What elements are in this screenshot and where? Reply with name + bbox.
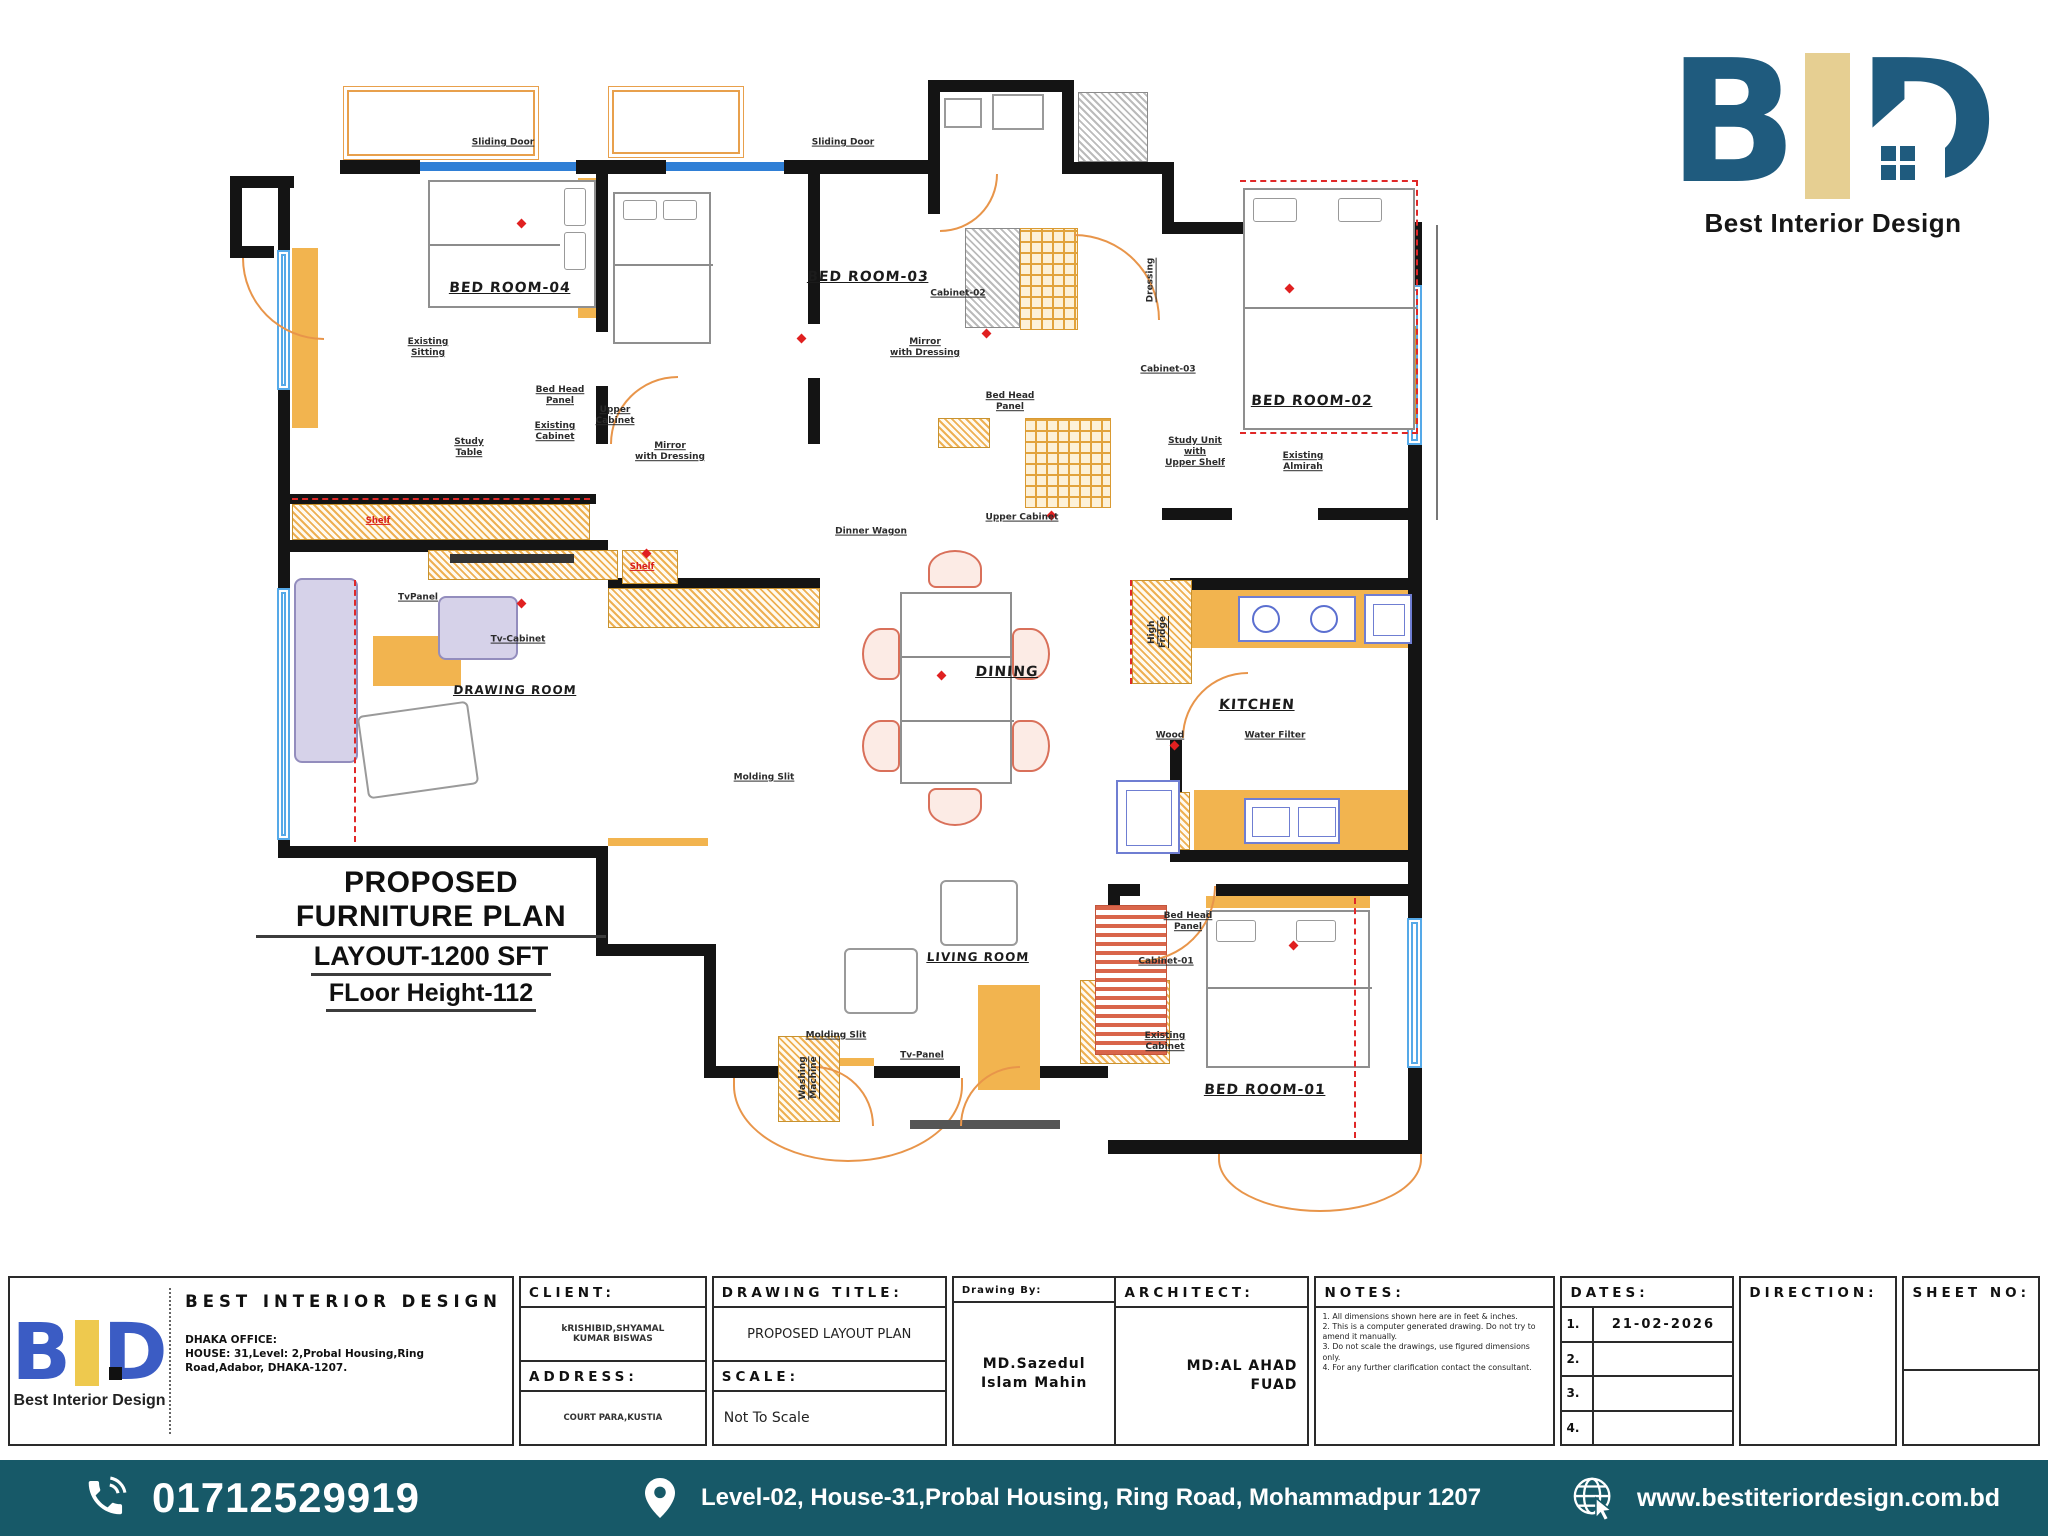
room-label: KITCHEN — [1218, 697, 1295, 713]
dining-table — [900, 592, 1012, 784]
room-label: BED ROOM-01 — [1204, 1082, 1327, 1098]
footer-website: www.bestiteriordesign.com.bd — [1637, 1484, 2000, 1513]
direction-header: DIRECTION: — [1741, 1278, 1895, 1306]
date-number: 1. — [1562, 1308, 1594, 1341]
small-logo-letter-i — [75, 1320, 99, 1386]
plan-title: PROPOSED FURNITURE PLAN LAYOUT-1200 SFT … — [256, 866, 606, 1015]
address-value: COURT PARA,KUSTIA — [521, 1390, 705, 1444]
architect-value: MD:AL AHAD FUAD — [1116, 1306, 1307, 1444]
dates-header: DATES: — [1562, 1278, 1732, 1306]
notes-box: NOTES: 1. All dimensions shown here are … — [1314, 1276, 1555, 1446]
furniture-label: Shelf — [366, 516, 391, 526]
furniture-label: Mirror with Dressing — [635, 441, 705, 463]
sofa-sketch — [357, 701, 480, 800]
drawing-by-value: MD.Sazedul Islam Mahin — [954, 1301, 1115, 1444]
furniture-label: Cabinet-03 — [1140, 365, 1195, 376]
note-item: 4. For any further clarification contact… — [1322, 1363, 1547, 1373]
scale-header: SCALE: — [714, 1360, 945, 1390]
furniture-label: Existing Almirah — [1283, 451, 1324, 473]
footer-phone: 01712529919 — [152, 1474, 420, 1522]
client-box: CLIENT: kRISHIBID,SHYAMAL KUMAR BISWAS A… — [519, 1276, 707, 1446]
bid-logo-letters: B D — [1668, 42, 1998, 202]
room-label: BED ROOM-02 — [1251, 393, 1374, 409]
balcony-outline — [343, 86, 539, 160]
armchair — [438, 596, 518, 660]
furniture-label: Molding Slit — [734, 773, 795, 784]
furniture-label: Bed Head Panel — [986, 391, 1035, 413]
client-header: CLIENT: — [521, 1278, 705, 1306]
date-row: 1. 21-02-2026 — [1562, 1306, 1732, 1341]
logo-letter-b: B — [1668, 44, 1798, 202]
furniture-label: Sliding Door — [812, 138, 874, 149]
sheet-box: SHEET NO: — [1902, 1276, 2040, 1446]
room-label: BED ROOM-03 — [807, 269, 930, 285]
title-block: B D Best Interior Design BEST INTERIOR D… — [8, 1276, 2040, 1446]
furniture-label: Washing Machine — [798, 1056, 820, 1099]
drawing-by-architect-box: Drawing By: MD.Sazedul Islam Mahin ARCHI… — [952, 1276, 1310, 1446]
small-logo: B D Best Interior Design — [10, 1278, 169, 1444]
drawing-title-header: DRAWING TITLE: — [714, 1278, 945, 1306]
footer-address: Level-02, House-31,Probal Housing, Ring … — [701, 1484, 1481, 1512]
furniture-label: Tv-Cabinet — [491, 635, 546, 646]
armchair-sketch — [940, 880, 1018, 946]
footer-bar: 01712529919 Level-02, House-31,Probal Ho… — [0, 1460, 2048, 1536]
floor-plan: BED ROOM-04BED ROOM-03BED ROOM-02DRAWING… — [278, 80, 1423, 1235]
furniture-label: Study Unit with Upper Shelf — [1165, 436, 1225, 468]
date-row: 2. — [1562, 1341, 1732, 1376]
company-logo: B D Best Interior Design — [1668, 42, 1998, 239]
date-number: 2. — [1562, 1343, 1594, 1376]
architect-header: ARCHITECT: — [1116, 1278, 1307, 1306]
furniture-label: Dressing — [1146, 258, 1157, 303]
client-value: kRISHIBID,SHYAMAL KUMAR BISWAS — [521, 1306, 705, 1360]
date-value — [1594, 1343, 1732, 1376]
dates-box: DATES: 1. 21-02-2026 2. 3. — [1560, 1276, 1734, 1446]
drawing-title-value: PROPOSED LAYOUT PLAN — [714, 1306, 945, 1360]
room-label: LIVING ROOM — [926, 950, 1030, 964]
furniture-label: Molding Slit — [806, 1031, 867, 1042]
furniture-label: Wood — [1156, 731, 1184, 742]
room-label: DINING — [975, 664, 1039, 680]
furniture-label: High Fridge — [1147, 616, 1169, 648]
note-item: 2. This is a computer generated drawing.… — [1322, 1322, 1547, 1342]
date-row: 3. — [1562, 1375, 1732, 1410]
stove — [1238, 596, 1356, 642]
furniture-label: Existing Cabinet — [535, 421, 576, 443]
globe-cursor-icon — [1571, 1475, 1617, 1521]
sink — [1364, 594, 1412, 644]
small-logo-window-icon — [109, 1367, 122, 1380]
bath-fixture — [944, 98, 982, 128]
company-name: BEST INTERIOR DESIGN — [185, 1292, 502, 1311]
furniture-label: Bed Head Panel — [536, 385, 585, 407]
logo-house-window-icon — [1881, 146, 1915, 180]
page: { "colors": { "footer_bg": "#175968", "l… — [0, 0, 2048, 1536]
sofa — [294, 578, 358, 763]
sheet-header: SHEET NO: — [1904, 1278, 2038, 1306]
logo-letter-i — [1805, 53, 1850, 199]
double-sink — [1244, 798, 1340, 844]
furniture-label: Cabinet-02 — [930, 289, 985, 300]
bath-fixture — [992, 94, 1044, 130]
scale-value: Not To Scale — [714, 1390, 945, 1444]
dates-rows: 1. 21-02-2026 2. 3. 4. — [1562, 1306, 1732, 1444]
notes-header: NOTES: — [1316, 1278, 1553, 1306]
direction-box: DIRECTION: — [1739, 1276, 1897, 1446]
furniture-label: Tv-Panel — [900, 1051, 944, 1062]
date-row: 4. — [1562, 1410, 1732, 1445]
date-number: 3. — [1562, 1377, 1594, 1410]
furniture-label: TvPanel — [398, 593, 438, 604]
note-item: 1. All dimensions shown here are in feet… — [1322, 1312, 1547, 1322]
balcony-curve — [1218, 1154, 1422, 1212]
phone-icon — [82, 1475, 128, 1521]
date-value — [1594, 1412, 1732, 1445]
bed — [613, 192, 711, 344]
room-label: DRAWING ROOM — [453, 683, 577, 697]
armchair-sketch — [844, 948, 918, 1014]
drawing-title-box: DRAWING TITLE: PROPOSED LAYOUT PLAN SCAL… — [712, 1276, 947, 1446]
furniture-label: Existing Sitting — [408, 337, 449, 359]
logo-letter-d: D — [1857, 44, 1998, 202]
balcony-outline — [608, 86, 744, 158]
location-pin-icon — [645, 1478, 675, 1518]
drawing-by-header: Drawing By: — [954, 1278, 1115, 1301]
furniture-label: Shelf — [630, 562, 655, 572]
plan-title-line3: FLoor Height-112 — [326, 979, 536, 1012]
furniture-label: Water Filter — [1245, 731, 1306, 742]
furniture-label: Sliding Door — [472, 138, 534, 149]
small-logo-letter-b: B — [11, 1318, 70, 1388]
room-label: BED ROOM-04 — [449, 280, 572, 296]
furniture-label: Bed Head Panel — [1164, 911, 1213, 933]
title-block-logo-box: B D Best Interior Design BEST INTERIOR D… — [8, 1276, 514, 1446]
furniture-label: Study Table — [454, 437, 484, 459]
logo-house-icon — [1871, 130, 1945, 190]
furniture-label: Existing Cabinet — [1145, 1031, 1186, 1053]
note-item: 3. Do not scale the drawings, use figure… — [1322, 1342, 1547, 1362]
office-address: DHAKA OFFICE: HOUSE: 31,Level: 2,Probal … — [185, 1333, 502, 1376]
date-value — [1594, 1377, 1732, 1410]
address-header: ADDRESS: — [521, 1360, 705, 1390]
plan-title-line1: PROPOSED FURNITURE PLAN — [256, 866, 606, 938]
divider — [1904, 1369, 2038, 1371]
furniture-label: Upper Cabinet — [986, 513, 1059, 524]
plan-title-line2: LAYOUT-1200 SFT — [311, 941, 552, 976]
notes-list: 1. All dimensions shown here are in feet… — [1316, 1306, 1553, 1377]
wash-basin — [1116, 780, 1180, 854]
furniture-label: Cabinet-01 — [1138, 957, 1193, 968]
furniture-label: Upper Cabinet — [595, 405, 634, 427]
date-number: 4. — [1562, 1412, 1594, 1445]
date-value: 21-02-2026 — [1594, 1308, 1732, 1341]
furniture-label: Dinner Wagon — [835, 527, 907, 538]
small-logo-letter-d: D — [103, 1318, 168, 1388]
bed — [1206, 910, 1370, 1068]
furniture-label: Mirror with Dressing — [890, 337, 960, 359]
